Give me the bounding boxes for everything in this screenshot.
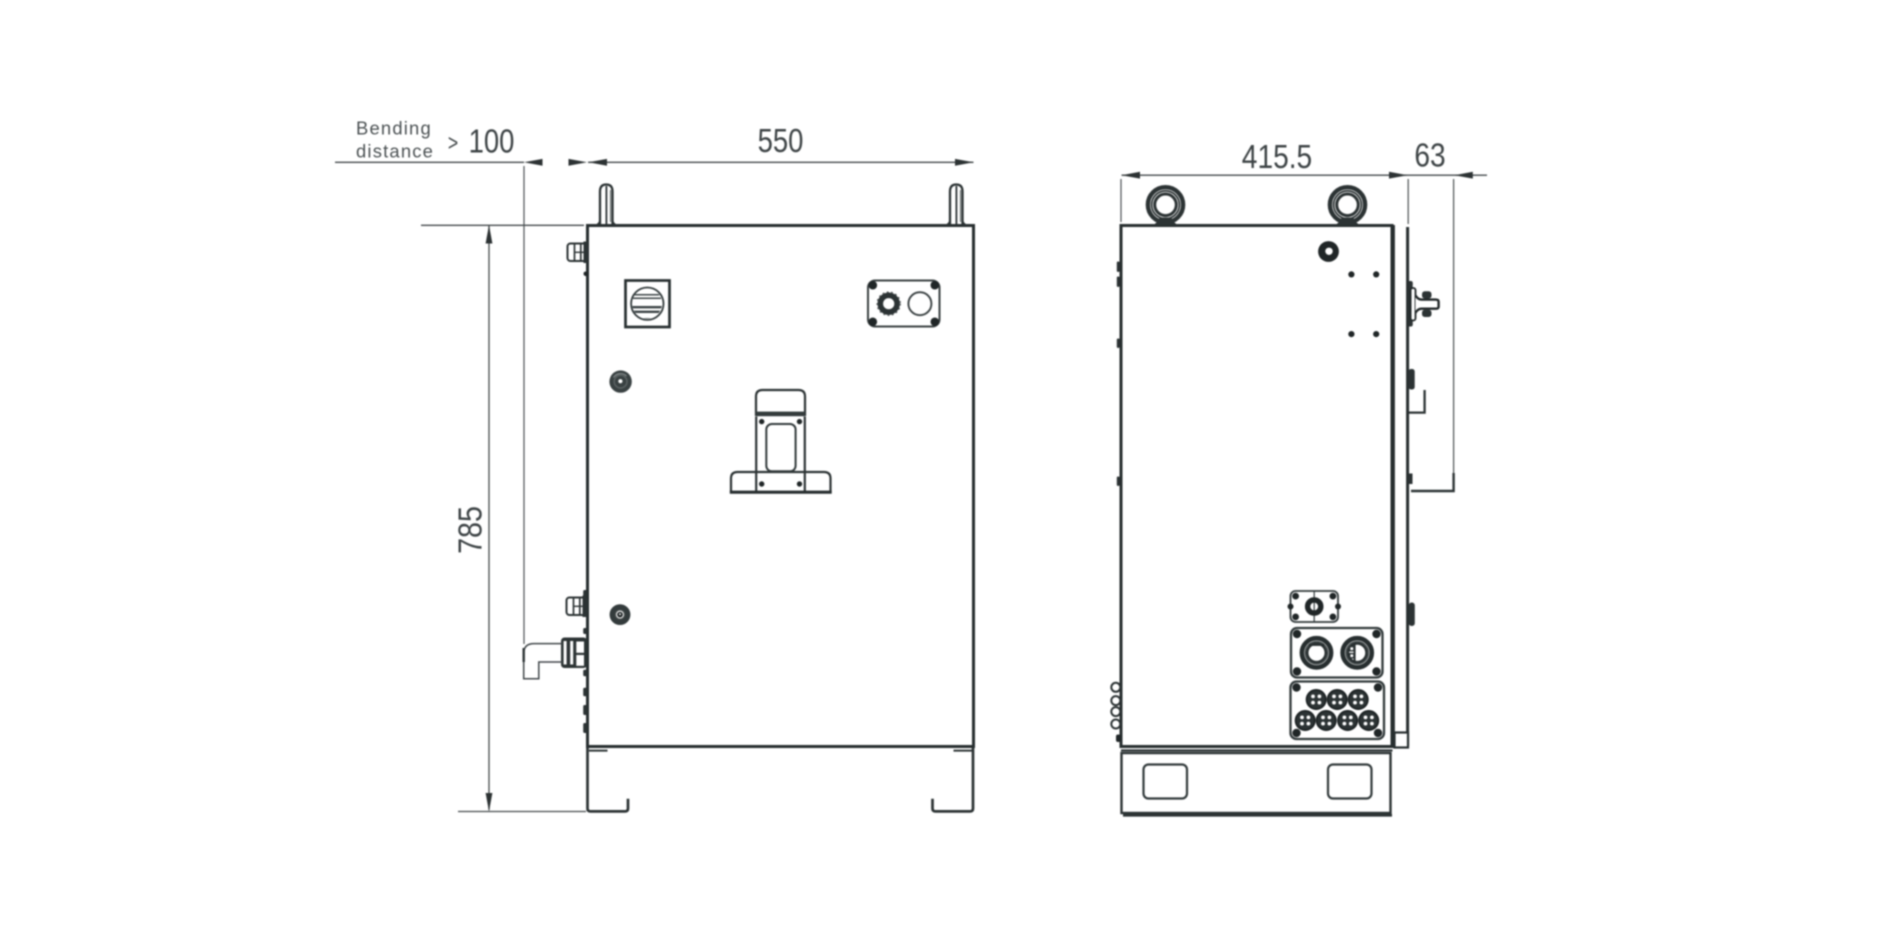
svg-text:415.5: 415.5 — [1242, 138, 1312, 176]
svg-text:Bending: Bending — [356, 118, 432, 139]
svg-text:>: > — [448, 130, 458, 156]
svg-text:100: 100 — [469, 123, 515, 160]
svg-text:63: 63 — [1414, 136, 1445, 174]
svg-text:550: 550 — [758, 123, 804, 160]
svg-text:distance: distance — [356, 141, 434, 162]
svg-text:785: 785 — [452, 506, 489, 554]
